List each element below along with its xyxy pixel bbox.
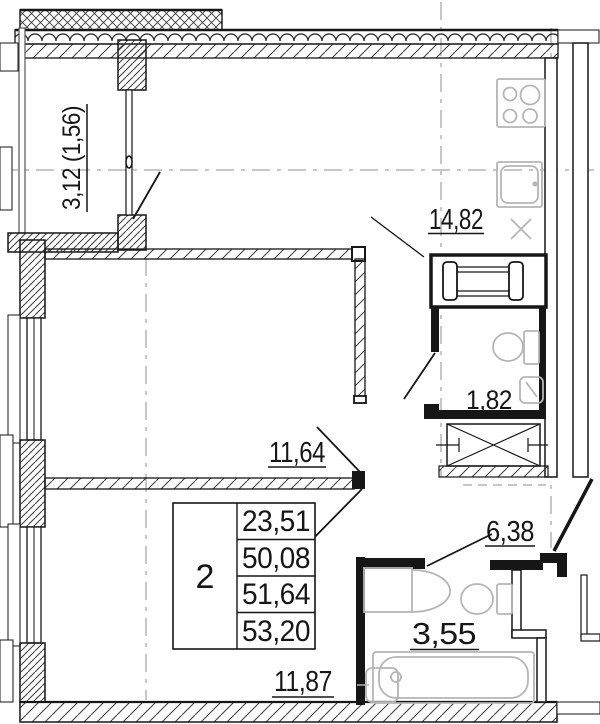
entry-door-leaf: [554, 479, 592, 551]
balcony-window-handle: [126, 156, 132, 168]
wc-toilet: [493, 331, 539, 364]
washing-machine: [364, 568, 450, 612]
top-wall-insulation: [15, 30, 558, 44]
top-wall-masonry: [15, 44, 558, 58]
left-pier-2: [20, 440, 45, 527]
area-row-1: 23,51: [242, 505, 310, 538]
floor-plan-drawing: 2 23,51 50,08 51,64 53,20 3,12 (1,56) 14…: [0, 0, 600, 724]
balcony-area-label: 3,12 (1,56): [58, 106, 86, 210]
hall-area-label: 6,38: [486, 516, 534, 548]
left-outer-strip-2: [0, 435, 13, 527]
outer-wall-lower-right: [581, 575, 587, 637]
wc-bottom-jamb: [424, 404, 439, 419]
bottom-right-stub: [557, 702, 600, 714]
partition-kitchen-room1: [45, 249, 365, 259]
room1-door-jamb: [354, 396, 366, 403]
room1-right-wall: [355, 259, 365, 403]
room2-area-label: 11,87: [274, 666, 332, 698]
outer-wall-return: [581, 634, 600, 641]
kitchen-area-label: 14,82: [429, 204, 483, 236]
balcony-pier-top: [118, 40, 146, 90]
left-wall-stub-mid: [0, 147, 12, 210]
right-wall-outer: [573, 43, 588, 477]
balcony-pier-bottom: [118, 215, 146, 250]
bath-right-wall-upper: [512, 570, 521, 637]
balcony-parapet: [20, 10, 222, 30]
rooms-count: 2: [196, 558, 215, 596]
wc-door-leaf: [404, 353, 435, 399]
partition-jamb-block: [352, 471, 365, 489]
wc-left-wall: [431, 307, 439, 352]
top-right-wall-stub: [558, 30, 599, 43]
window-2-sill: [8, 524, 20, 646]
area-row-4: 53,20: [242, 615, 310, 648]
partition-room1-room2: [45, 478, 354, 489]
entry-jamb-1: [540, 553, 567, 563]
bath-toilet: [461, 584, 512, 614]
kitchen-label-leader: [371, 217, 424, 257]
left-outer-strip-3: [0, 640, 13, 702]
vent-shaft: [436, 424, 548, 477]
wet-zone-walls: [356, 255, 600, 705]
floor-plan: 2 23,51 50,08 51,64 53,20 3,12 (1,56) 14…: [0, 0, 600, 724]
left-wall-stub-top: [0, 43, 18, 71]
hob-cross: [511, 219, 531, 239]
balcony-door-leaf: [133, 172, 160, 219]
kitchen-sink: [497, 162, 542, 207]
bath-area-label: 3,55: [412, 616, 476, 651]
wc-area-label: 1,82: [466, 385, 512, 415]
vent-block: [431, 255, 546, 307]
balcony-block: [118, 40, 160, 250]
left-pier-3: [20, 643, 45, 702]
bath-top-wall-right: [490, 560, 543, 570]
area-row-2: 50,08: [242, 542, 310, 575]
bath-wall-jog: [512, 630, 546, 638]
entry-jamb-2: [557, 563, 567, 577]
balcony-glazing-left: [19, 28, 25, 233]
room1-area-label: 11,64: [269, 437, 325, 469]
area-row-3: 51,64: [242, 578, 310, 611]
bottom-wall: [20, 702, 557, 722]
balcony-window: [126, 90, 132, 215]
bath-right-wall-lower: [537, 638, 546, 702]
bath-door-leaf: [427, 534, 492, 566]
unit-table: 2 23,51 50,08 51,64 53,20: [173, 503, 315, 649]
window-1-sill: [8, 315, 20, 443]
stove: [497, 79, 545, 127]
left-pier-1: [20, 240, 45, 318]
